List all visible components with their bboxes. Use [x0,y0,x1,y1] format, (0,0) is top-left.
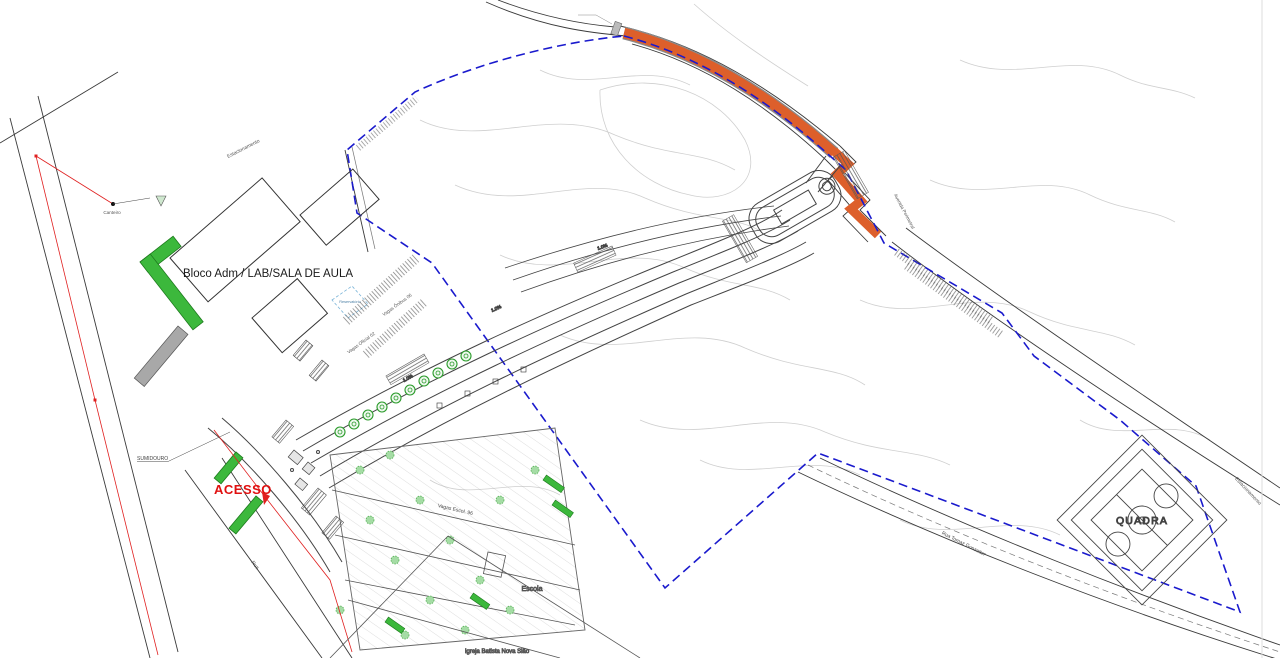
site-plan-canvas: 1.0% 1.0% 1.0% [0,0,1280,658]
access-label: ACESSO [214,482,272,497]
shrub-icon [496,496,504,504]
planting-bed-label: Canteiro [103,210,121,215]
tree-icon [363,410,373,420]
parking-top-label: Estacionamento [226,138,261,160]
planting-bed-icon [156,196,166,206]
tree-icon [419,376,429,386]
highlighted-new-road [578,15,878,235]
shrub-icon [386,451,394,459]
avenue-label: Avenida Perimetral [893,193,916,230]
main-building-label: Bloco Adm / LAB/SALA DE AULA [183,268,353,280]
shrub-icon [416,496,424,504]
church-label: Igreja Batista Nova Sião [465,649,530,655]
road-median-trees [335,351,471,437]
bus-terminal-loop [722,151,868,263]
retaining-wall-hatch [355,96,419,151]
street-left-label: Rua [250,560,261,571]
tree-icon [433,368,443,378]
tree-icon [377,402,387,412]
tree-icon [335,427,345,437]
reservoir-label: Reservatório [339,300,361,304]
school-label: Escola [521,586,542,593]
tree-icon [405,385,415,395]
shrub-icon [476,576,484,584]
shrub-icon [426,596,434,604]
shrub-icon [506,606,514,614]
court-label: QUADRA [1116,515,1168,527]
survey-lines: Canteiro [35,155,167,656]
shrub-icon [531,466,539,474]
crosswalk-hatch [386,246,616,385]
shrub-icon [366,516,374,524]
shrub-icon [356,466,364,474]
shrub-icon [391,556,399,564]
avenue-parking-hatch [893,248,1003,338]
road-slope-label: 1.0% [490,304,502,313]
main-parking-lot: Vagas Escol. 96 [330,428,585,650]
tree-icon [349,419,359,429]
sports-court: QUADRA [1057,435,1227,605]
building-ramp [134,326,188,386]
tree-icon [391,393,401,403]
soakaway-callout: SUMIDOURO [137,432,230,462]
soakaway-label: SUMIDOURO [137,456,168,462]
bus-parking-bays: Vagas Ônibus 06 Vagas Oficial 02 [342,254,427,358]
building-green-strip [140,236,226,330]
tree-icon [461,351,471,361]
site-plan-drawing: 1.0% 1.0% 1.0% [0,0,1280,658]
tree-icon [447,359,457,369]
